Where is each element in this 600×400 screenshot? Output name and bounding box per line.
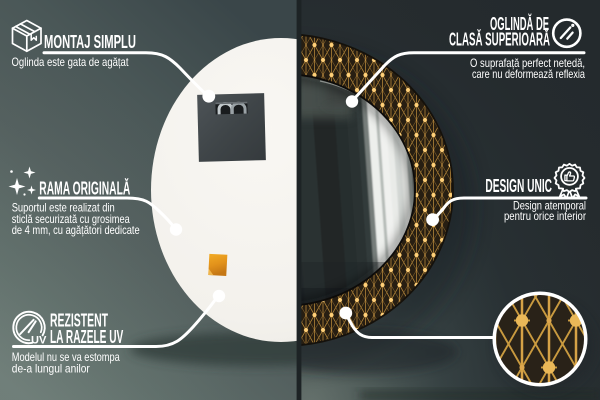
svg-text:LA RAZELE UV: LA RAZELE UV: [50, 327, 123, 347]
svg-text:RAMA ORIGINALĂ: RAMA ORIGINALĂ: [39, 177, 130, 198]
svg-text:MONTAJ SIMPLU: MONTAJ SIMPLU: [44, 32, 136, 52]
svg-text:DESIGN UNIC: DESIGN UNIC: [485, 176, 552, 196]
svg-text:UV: UV: [31, 335, 47, 347]
svg-text:de-a lungul anilor: de-a lungul anilor: [12, 361, 90, 375]
svg-text:Oglinda este gata de agățat: Oglinda este gata de agățat: [12, 55, 130, 69]
svg-text:pentru orice interior: pentru orice interior: [504, 209, 586, 223]
svg-text:care nu deformează reflexia: care nu deformează reflexia: [472, 67, 585, 81]
svg-text:CLASĂ SUPERIOARĂ: CLASĂ SUPERIOARĂ: [449, 29, 550, 50]
svg-text:de 4 mm, cu agățători dedicate: de 4 mm, cu agățători dedicate: [12, 223, 140, 237]
